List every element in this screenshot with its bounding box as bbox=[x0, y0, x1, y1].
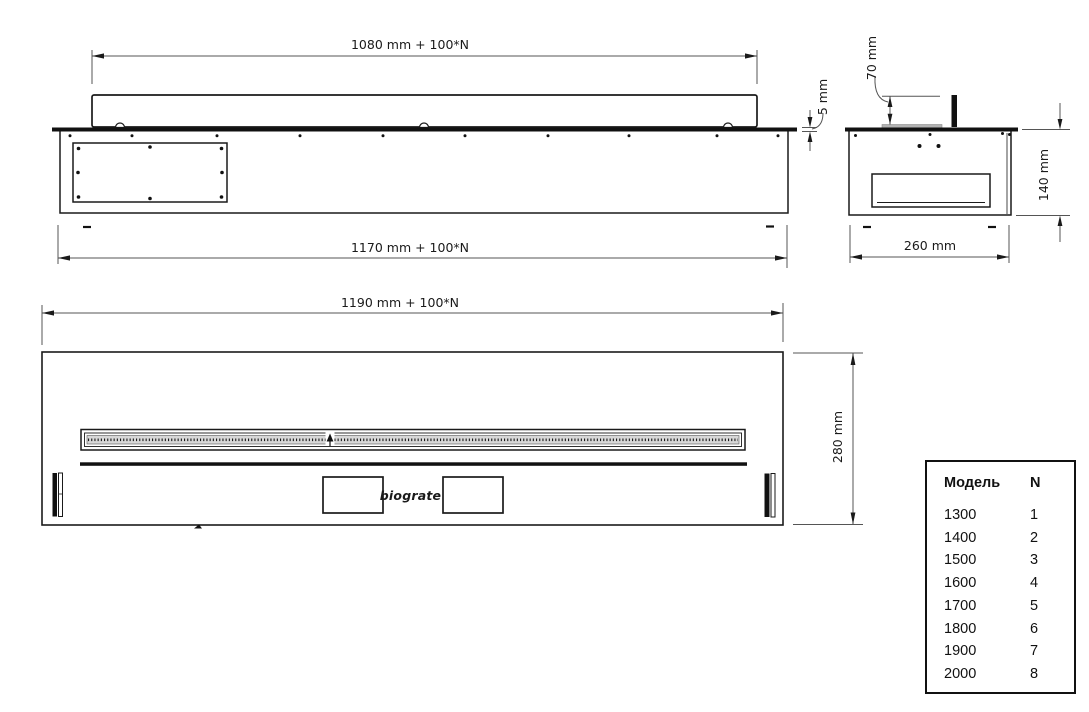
n-value: 2 bbox=[1030, 527, 1038, 550]
n-value: 5 bbox=[1030, 595, 1038, 618]
table-row: 16004 bbox=[944, 572, 1074, 595]
n-value: 6 bbox=[1030, 618, 1038, 641]
table-row: 18006 bbox=[944, 618, 1074, 641]
dim-front-bottom-label: 1170 mm + 100*N bbox=[351, 240, 469, 255]
table-row: 14002 bbox=[944, 527, 1074, 550]
model-table-header-model: Модель bbox=[944, 473, 1030, 493]
technical-drawing-page: 1080 mm + 100*N bbox=[0, 0, 1089, 712]
model-value: 1600 bbox=[944, 572, 1030, 595]
n-value: 7 bbox=[1030, 640, 1038, 663]
access-panel bbox=[73, 143, 227, 202]
igniter-bar bbox=[952, 95, 958, 127]
model-value: 2000 bbox=[944, 663, 1030, 686]
flange-front bbox=[52, 128, 797, 132]
glass-slot-line bbox=[80, 462, 747, 466]
model-value: 1400 bbox=[944, 527, 1030, 550]
model-table: МодельN 13001 14002 15003 16004 17005 18… bbox=[925, 460, 1076, 694]
model-value: 1700 bbox=[944, 595, 1030, 618]
n-value: 8 bbox=[1030, 663, 1038, 686]
model-value: 1900 bbox=[944, 640, 1030, 663]
model-table-header-n: N bbox=[1030, 473, 1040, 493]
control-box-left bbox=[323, 477, 383, 513]
n-value: 1 bbox=[1030, 504, 1038, 527]
dim-side-height-label: 140 mm bbox=[1036, 149, 1051, 201]
dim-side-depth-label: 260 mm bbox=[904, 238, 956, 253]
burner-height-dimension bbox=[875, 77, 890, 125]
n-value: 4 bbox=[1030, 572, 1038, 595]
model-value: 1300 bbox=[944, 504, 1030, 527]
table-row: 15003 bbox=[944, 549, 1074, 572]
biograte-logo: biograte bbox=[380, 488, 441, 503]
model-table-rows: 13001 14002 15003 16004 17005 18006 1900… bbox=[944, 504, 1074, 686]
burner-box-front bbox=[92, 95, 757, 127]
top-view: 1190 mm + 100*N biograte bbox=[42, 295, 863, 529]
table-row: 17005 bbox=[944, 595, 1074, 618]
n-value: 3 bbox=[1030, 549, 1038, 572]
table-row: 20008 bbox=[944, 663, 1074, 686]
dim-burner-height-label: 70 mm bbox=[864, 36, 879, 80]
table-row: 13001 bbox=[944, 504, 1074, 527]
top-depth-dimension bbox=[793, 353, 863, 525]
dim-flange-label: 5 mm bbox=[815, 79, 830, 115]
flange-side bbox=[845, 128, 1018, 132]
front-view: 1080 mm + 100*N bbox=[52, 37, 830, 268]
control-box-right bbox=[443, 477, 503, 513]
model-table-header: МодельN bbox=[944, 473, 1074, 493]
flange-thickness-dimension bbox=[802, 110, 823, 151]
table-row: 19007 bbox=[944, 640, 1074, 663]
model-value: 1800 bbox=[944, 618, 1030, 641]
side-view: 70 mm 140 mm bbox=[845, 36, 1070, 263]
model-value: 1500 bbox=[944, 549, 1030, 572]
dim-top-depth-label: 280 mm bbox=[830, 411, 845, 463]
dim-front-top-label: 1080 mm + 100*N bbox=[351, 37, 469, 52]
front-top-dimension bbox=[92, 50, 757, 84]
dim-top-width-label: 1190 mm + 100*N bbox=[341, 295, 459, 310]
